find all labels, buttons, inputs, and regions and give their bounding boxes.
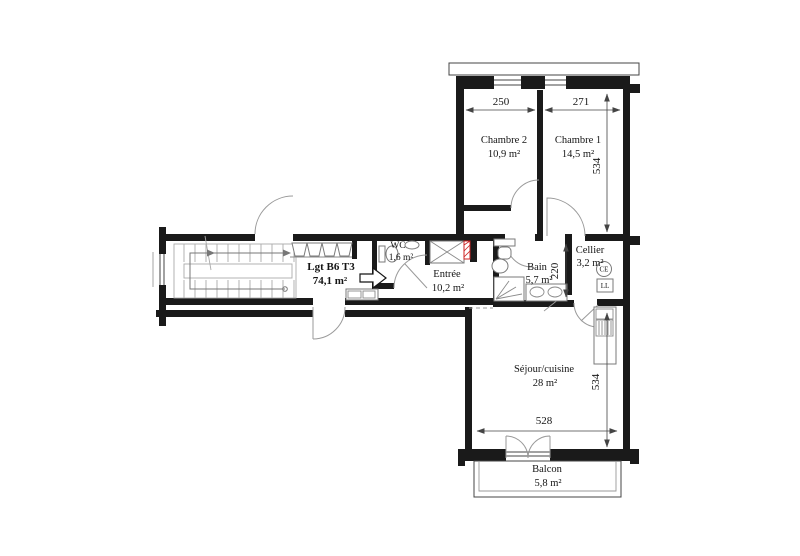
corridor-south-wall-inner-w <box>162 298 313 305</box>
label-cellier-name: Cellier <box>576 245 605 256</box>
balcony-door-left-arc <box>506 436 528 458</box>
bath-toilet-bowl <box>498 247 511 259</box>
sejour-south-wall-w <box>458 449 506 461</box>
stair-outline <box>174 244 296 298</box>
label-sejour-area: 28 m² <box>533 378 557 389</box>
label-bain-name: Bain <box>527 262 548 273</box>
balcony-door-right-arc <box>528 436 550 458</box>
dim-sejour-width: 528 <box>536 415 553 427</box>
label-balcon-name: Balcon <box>532 464 562 475</box>
window-chambre1 <box>545 80 566 85</box>
entry-door-arc <box>255 196 293 234</box>
stair-rail <box>184 264 292 278</box>
label-entree-area: 10,2 m² <box>432 283 464 294</box>
label-wc-name: WC <box>390 241 405 251</box>
bath-sink <box>492 259 508 273</box>
stair-treads <box>184 244 294 298</box>
stair-exit-door-arc <box>313 307 345 339</box>
entree-closet-doors <box>292 243 352 256</box>
label-wc-area: 1,6 m² <box>389 253 414 263</box>
label-bain-area: 5,7 m² <box>525 275 552 286</box>
label-chambre1-area: 14,5 m² <box>562 149 594 160</box>
stair-walk-line <box>190 253 285 289</box>
label-apartment-area: 74,1 m² <box>313 275 348 287</box>
top-wall-pier <box>521 76 545 89</box>
building-south-wall-e <box>345 310 467 317</box>
sejour-south-wall-e <box>550 449 639 461</box>
building-south-wall-w <box>156 310 313 317</box>
label-balcon-area: 5,8 m² <box>534 478 561 489</box>
wc-toilet-tank <box>379 246 385 262</box>
dim-chambre1-width: 271 <box>573 96 590 108</box>
wc-sink <box>405 241 419 249</box>
wc-east-wall <box>425 241 430 265</box>
corridor-north-wall-west <box>162 234 255 241</box>
sejour-south-cap-w <box>458 449 465 466</box>
window-stairwell <box>160 254 164 285</box>
sejour-south-cap-e <box>630 449 639 464</box>
chambre1-door-arc <box>547 198 585 236</box>
top-slab-band <box>449 63 639 75</box>
label-entree-name: Entrée <box>433 269 461 280</box>
closet-end-wall <box>352 241 357 259</box>
label-water-heater: CE <box>600 266 609 274</box>
top-wall-seg2 <box>566 76 630 89</box>
cellier-south-wall <box>597 299 623 306</box>
east-stub-mid <box>630 236 640 245</box>
stair-west-wall-lower <box>159 285 166 326</box>
duct-east-wall <box>470 234 477 262</box>
sejour-west-wall <box>465 307 472 461</box>
label-chambre2-name: Chambre 2 <box>481 135 527 146</box>
label-chambre2-area: 10,9 m² <box>488 149 520 160</box>
inter-bedroom-wall <box>537 90 543 235</box>
bedroom-west-wall <box>456 76 464 242</box>
east-stub-top <box>630 84 640 93</box>
floor-plan-page: 250 271 534 220 528 534 Chambre 2 10,9 m… <box>0 0 800 556</box>
window-chambre2 <box>494 80 521 85</box>
label-sejour-name: Séjour/cuisine <box>514 364 574 375</box>
dim-chambre2-width: 250 <box>493 96 510 108</box>
floor-plan-drawing: 250 271 534 220 528 534 Chambre 2 10,9 m… <box>0 0 800 556</box>
walls <box>156 63 640 466</box>
chambre2-south-wall <box>463 205 511 211</box>
stair-west-wall-upper <box>159 227 166 254</box>
label-apartment-title: Lgt B6 T3 <box>307 261 355 273</box>
label-chambre1-name: Chambre 1 <box>555 135 601 146</box>
vanity-counter <box>526 284 567 301</box>
chambre1-south-wall <box>585 234 623 241</box>
dim-sejour-height: 534 <box>590 373 602 390</box>
staircase <box>174 236 296 298</box>
label-washing-machine: LL <box>601 282 610 290</box>
bath-toilet-tank <box>494 239 515 246</box>
chambre2-door-arc <box>511 180 539 208</box>
east-wall <box>623 76 630 461</box>
wall-pier-bedroom1 <box>535 234 543 241</box>
